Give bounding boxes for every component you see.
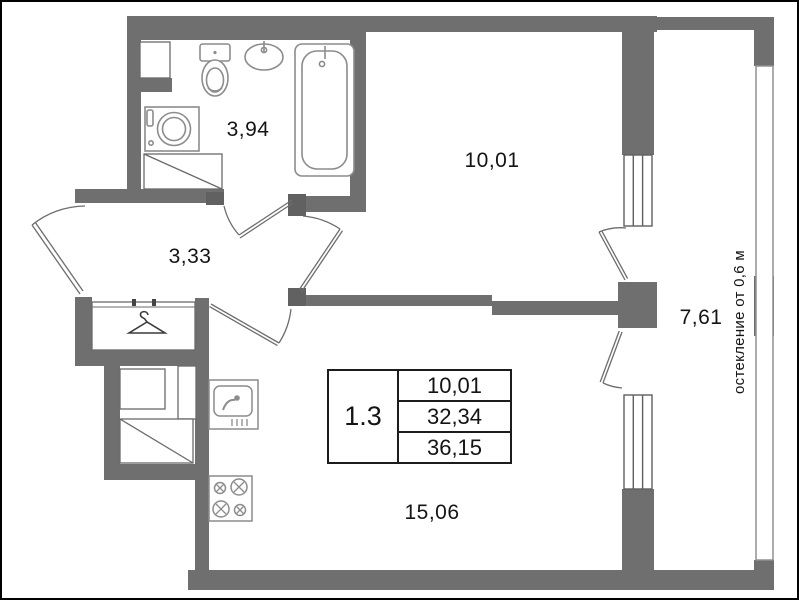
floor-plan-svg — [2, 2, 799, 600]
wall-segment — [754, 560, 774, 590]
room-area-living-kitchen: 15,06 — [404, 501, 459, 525]
wall-segment — [195, 298, 209, 588]
living-room-door-swing-icon — [210, 304, 292, 346]
wall-segment — [188, 570, 774, 590]
area-summary-rows: 10,01 32,34 36,15 — [399, 371, 510, 462]
bathtub-icon — [295, 44, 354, 176]
wardrobe — [92, 299, 195, 350]
summary-value-3: 36,15 — [399, 431, 510, 462]
washing-machine-icon — [145, 107, 199, 151]
wall-segment — [754, 17, 774, 66]
bedroom-door-swing-icon — [299, 216, 343, 292]
bathroom-door-swing-icon — [224, 200, 293, 238]
wall-segment — [140, 78, 172, 92]
wall-pier — [206, 192, 224, 205]
wardrobe-tick — [152, 299, 156, 306]
bedroom-window-icon — [624, 155, 652, 226]
bathroom-sink-icon — [245, 41, 283, 70]
balcony-railing-icon — [756, 66, 773, 560]
summary-value-2: 32,34 — [399, 400, 510, 431]
wall-segment — [75, 189, 224, 203]
wall-segment — [622, 30, 654, 155]
wall-pier — [288, 288, 306, 306]
wall-segment — [104, 464, 209, 480]
room-area-bathroom: 3,94 — [227, 118, 270, 142]
bedroom-balcony-door-swing-icon — [599, 228, 628, 280]
wall-segment — [104, 366, 120, 480]
floor-plan-page: 3,94 10,01 3,33 7,61 15,06 остекление от… — [0, 0, 799, 600]
entry-door-swing-icon — [32, 206, 85, 294]
wall-segment — [77, 350, 209, 366]
room-area-hallway: 3,33 — [169, 245, 212, 269]
wall-segment — [127, 16, 141, 203]
wall-segment — [618, 282, 657, 328]
wardrobe-tick — [132, 299, 136, 306]
kitchen-sink-icon — [209, 380, 258, 429]
area-summary-table: 1.3 10,01 32,34 36,15 — [327, 369, 512, 464]
summary-value-1: 10,01 — [399, 371, 510, 400]
wall-segment — [366, 16, 657, 32]
glazing-note: остекление от 0,6 м — [731, 212, 755, 432]
room-area-bedroom: 10,01 — [464, 149, 519, 173]
living-room-window-icon — [624, 395, 652, 489]
toilet-icon — [200, 44, 230, 96]
wall-segment — [492, 301, 620, 315]
wall-segment — [304, 295, 492, 306]
living-balcony-door-swing-icon — [600, 331, 622, 388]
room-area-balcony: 7,61 — [680, 306, 723, 330]
stove-icon — [209, 476, 252, 521]
wall-segment — [132, 16, 366, 40]
unit-number: 1.3 — [329, 371, 399, 462]
